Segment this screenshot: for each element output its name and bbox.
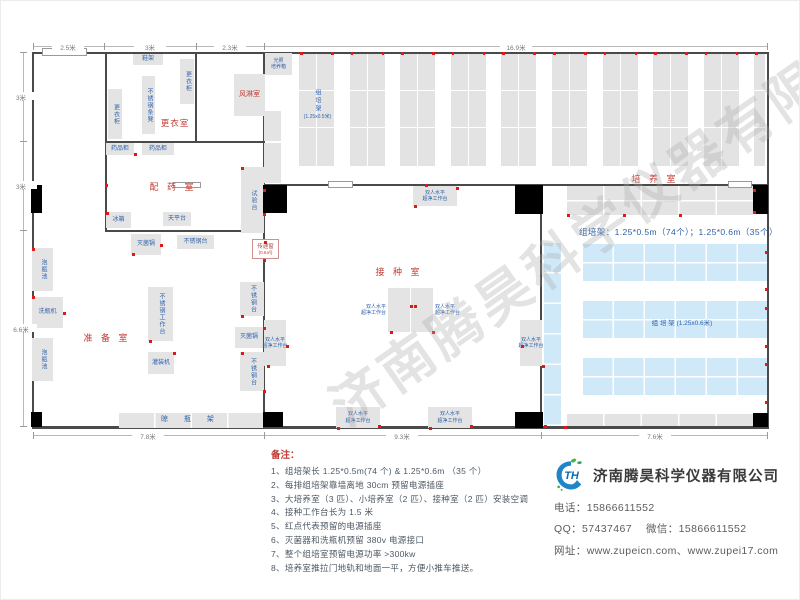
dimension-tick: [767, 432, 768, 439]
dimension-tick: [767, 43, 768, 50]
company-name: 济南腾昊科学仪器有限公司: [593, 465, 779, 486]
dimension-label: 9.3米: [386, 431, 418, 439]
power-outlet-dot: [390, 331, 393, 334]
dimension-label: 2.3米: [214, 42, 246, 50]
power-outlet-dot: [685, 52, 688, 55]
qq-label: QQ：: [554, 523, 582, 535]
equipment-box: [264, 143, 281, 183]
qq-wechat-line: QQ：57437467微信：15866611552: [554, 521, 794, 536]
room-label: 接 种 室: [329, 265, 469, 277]
wechat-label: 微信：: [646, 523, 679, 535]
wall: [195, 52, 197, 142]
power-outlet-dot: [604, 52, 607, 55]
power-outlet-dot: [32, 296, 35, 299]
rack-strip-label-title: 组培架: [313, 89, 322, 113]
column: [31, 185, 42, 213]
notes-section: 备注： 1、组培架长 1.25*0.5m(74 个) & 1.25*0.6m （…: [271, 447, 561, 575]
column: [515, 185, 543, 214]
dimension-label: 6.6米: [5, 324, 37, 332]
pass-window-size: (0.6㎡): [259, 250, 273, 256]
power-outlet-dot: [382, 52, 385, 55]
power-outlet-dot: [263, 213, 266, 216]
equipment-label: 双人水平 超净工作台: [428, 407, 472, 428]
note-item: 5、红点代表预留的电源插座: [271, 520, 561, 534]
power-outlet-dot: [331, 52, 334, 55]
power-outlet-dot: [705, 52, 708, 55]
power-outlet-dot: [267, 365, 270, 368]
dimension-label: 3米: [5, 92, 37, 100]
power-outlet-dot: [521, 345, 524, 348]
power-outlet-dot: [567, 214, 570, 217]
dimension-tick: [33, 432, 34, 439]
power-outlet-dot: [160, 244, 163, 247]
power-outlet-dot: [584, 52, 587, 55]
rack-strip: [754, 54, 765, 166]
column: [515, 412, 543, 428]
power-outlet-dot: [533, 52, 536, 55]
power-outlet-dot: [425, 184, 428, 187]
dimension-line: [23, 52, 24, 426]
contact-section: TH 济南腾昊科学仪器有限公司 电话：15866611552 QQ：574374…: [554, 457, 794, 558]
power-outlet-dot: [470, 425, 473, 428]
power-outlet-dot: [300, 52, 303, 55]
power-outlet-dot: [378, 425, 381, 428]
column: [31, 412, 42, 427]
dimension-label: 3米: [134, 42, 166, 50]
rack-strip-label-size: (1.25x0.5米): [304, 113, 332, 120]
dimension-tick: [264, 432, 265, 439]
equipment-label: 鞋架: [133, 54, 163, 65]
power-outlet-dot: [432, 331, 435, 334]
dimension-label: 3米: [5, 181, 37, 189]
equipment-label: 双人水平 超净工作台: [340, 288, 386, 332]
equipment-label: 更衣柜: [180, 59, 194, 104]
rack-strip: [552, 54, 587, 166]
power-outlet-dot: [753, 189, 756, 192]
rack-strip-label: 组培架(1.25x0.5米): [299, 89, 336, 120]
rack-strip: [704, 54, 739, 166]
power-outlet-dot: [765, 363, 768, 366]
rack-strip: [350, 54, 385, 166]
power-outlet-dot: [263, 390, 266, 393]
equipment-label: 药品柜: [106, 143, 134, 155]
power-outlet-dot: [32, 248, 35, 251]
brand-row: TH 济南腾昊科学仪器有限公司: [554, 457, 794, 493]
dimension-tick: [20, 141, 27, 142]
website-separator: 、: [677, 545, 688, 557]
equipment-box: [411, 288, 433, 332]
power-outlet-dot: [410, 305, 413, 308]
power-outlet-dot: [635, 52, 638, 55]
gray-rack: [567, 186, 753, 215]
rack-info-text: 组培架：1.25*0.5m（74个）；1.25*0.6m（35个）: [579, 226, 778, 238]
phone-label: 电话：: [554, 502, 587, 514]
dimension-tick: [20, 426, 27, 427]
power-outlet-dot: [351, 52, 354, 55]
power-outlet-dot: [414, 205, 417, 208]
power-outlet-dot: [264, 241, 267, 244]
dimension-tick: [264, 43, 265, 50]
power-outlet-dot: [553, 52, 556, 55]
note-item: 1、组培架长 1.25*0.5m(74 个) & 1.25*0.6m （35 个…: [271, 465, 561, 479]
equipment-label: 双人水平 超净工作台: [413, 186, 457, 206]
equipment-label: 光照 培养箱: [265, 53, 292, 75]
power-outlet-dot: [753, 211, 756, 214]
power-outlet-dot: [736, 52, 739, 55]
power-outlet-dot: [452, 52, 455, 55]
wall: [767, 52, 769, 429]
equipment-label: 试验台: [241, 167, 264, 233]
rack-strip: [400, 54, 435, 166]
dimension-label: 7.8米: [132, 431, 164, 439]
power-outlet-dot: [263, 327, 266, 330]
dimension-tick: [33, 43, 34, 50]
power-outlet-dot: [337, 427, 340, 430]
door-opening: [728, 181, 752, 188]
power-outlet-dot: [263, 259, 266, 262]
phone-line: 电话：15866611552: [554, 500, 794, 515]
blue-rack-label: 组 培 架 (1.25x0.6米): [602, 317, 762, 326]
wechat-value: 15866611552: [679, 523, 747, 535]
power-outlet-dot: [679, 214, 682, 217]
power-outlet-dot: [623, 214, 626, 217]
power-outlet-dot: [755, 52, 758, 55]
power-outlet-dot: [241, 315, 244, 318]
equipment-label: 灌装机: [148, 352, 174, 374]
equipment-label: 不锈钢台: [240, 282, 264, 316]
phone-value: 15866611552: [587, 502, 655, 514]
equipment-label: 不锈钢台: [177, 235, 214, 249]
power-outlet-dot: [414, 305, 417, 308]
column: [753, 413, 768, 427]
dimension-label: 7.6米: [639, 431, 671, 439]
equipment-label: 双人水平 超净工作台: [435, 288, 481, 332]
dimension-tick: [20, 230, 27, 231]
equipment-label: 药品柜: [142, 143, 174, 155]
power-outlet-dot: [765, 401, 768, 404]
power-outlet-dot: [132, 253, 135, 256]
power-outlet-dot: [241, 352, 244, 355]
power-outlet-dot: [456, 187, 459, 190]
column: [263, 412, 283, 427]
website-url-2: www.zupei17.com: [688, 545, 779, 557]
rack-strip: [653, 54, 688, 166]
power-outlet-dot: [765, 307, 768, 310]
room-label: 准 备 室: [37, 331, 177, 343]
equipment-label: 风淋室: [234, 74, 265, 116]
notes-title: 备注：: [271, 447, 561, 461]
note-item: 7、整个组培室预留电源功率 >300kw: [271, 548, 561, 562]
equipment-label: 泡瓶池: [32, 338, 53, 381]
door-opening: [328, 181, 353, 188]
room-label: 更衣室: [105, 117, 245, 129]
power-outlet-dot: [241, 167, 244, 170]
website-line: 网址：www.zupeicn.com、www.zupei17.com: [554, 543, 794, 558]
equipment-box: [388, 288, 410, 332]
power-outlet-dot: [106, 212, 109, 215]
power-outlet-dot: [432, 52, 435, 55]
dimension-tick: [196, 43, 197, 50]
power-outlet-dot: [654, 52, 657, 55]
power-outlet-dot: [263, 189, 266, 192]
power-outlet-dot: [483, 52, 486, 55]
blue-rack-block: [583, 358, 767, 395]
dimension-label: 2.5米: [52, 42, 84, 50]
wall: [263, 184, 542, 186]
note-item: 3、大培养室（3 匹）、小培养室（2 匹）、接种室（2 匹）安装空调: [271, 493, 561, 507]
power-outlet-dot: [429, 427, 432, 430]
power-outlet-dot: [401, 52, 404, 55]
power-outlet-dot: [502, 52, 505, 55]
website-url-1: www.zupeicn.com: [587, 545, 677, 557]
power-outlet-dot: [63, 312, 66, 315]
power-outlet-dot: [765, 288, 768, 291]
room-label: 配 药 室: [103, 180, 243, 192]
power-outlet-dot: [286, 345, 289, 348]
column: [263, 185, 287, 213]
power-outlet-dot: [542, 365, 545, 368]
note-item: 2、每排组培架靠墙离地 30cm 预留电源插座: [271, 479, 561, 493]
dimension-label: 16.9米: [500, 42, 532, 50]
dimension-tick: [104, 43, 105, 50]
equipment-label: 更衣柜: [108, 89, 122, 139]
power-outlet-dot: [765, 251, 768, 254]
equipment-label: 天平台: [163, 212, 191, 226]
power-outlet-dot: [765, 345, 768, 348]
equipment-label: 灭菌锅: [131, 234, 161, 255]
blue-rack-block: [583, 244, 767, 281]
equipment-label: 双人水平 超净工作台: [252, 320, 298, 366]
floor-plan-page: 组培架(1.25x0.5米)组 培 架 (1.25x0.6米)组培架：1.25*…: [0, 0, 800, 600]
website-label: 网址：: [554, 545, 587, 557]
equipment-label: 双人水平 超净工作台: [508, 320, 554, 366]
equipment-box: [264, 111, 281, 141]
rack-strip: [603, 54, 638, 166]
power-outlet-dot: [173, 352, 176, 355]
equipment-label: 晾 瓶 架: [119, 413, 263, 428]
equipment-label: 冰箱: [106, 212, 131, 228]
equipment-label: 泡瓶池: [32, 248, 53, 291]
dimension-tick: [20, 52, 27, 53]
power-outlet-dot: [134, 153, 137, 156]
company-logo-icon: TH: [554, 457, 588, 493]
power-outlet-dot: [544, 425, 547, 428]
note-item: 6、灭菌器和洗瓶机预留 380v 电源接口: [271, 534, 561, 548]
wall: [540, 184, 542, 428]
note-item: 4、接种工作台长为 1.5 米: [271, 506, 561, 520]
dimension-tick: [541, 432, 542, 439]
rack-strip: [451, 54, 486, 166]
rack-strip: [501, 54, 536, 166]
room-label: 培 养 室: [585, 172, 725, 184]
company-logo-text: TH: [564, 470, 580, 482]
qq-value: 57437467: [582, 523, 632, 535]
power-outlet-dot: [564, 426, 567, 429]
note-item: 8、培养室推拉门地轨和地面一平，方便小推车推送。: [271, 562, 561, 576]
equipment-label: 双人水平 超净工作台: [336, 407, 380, 428]
